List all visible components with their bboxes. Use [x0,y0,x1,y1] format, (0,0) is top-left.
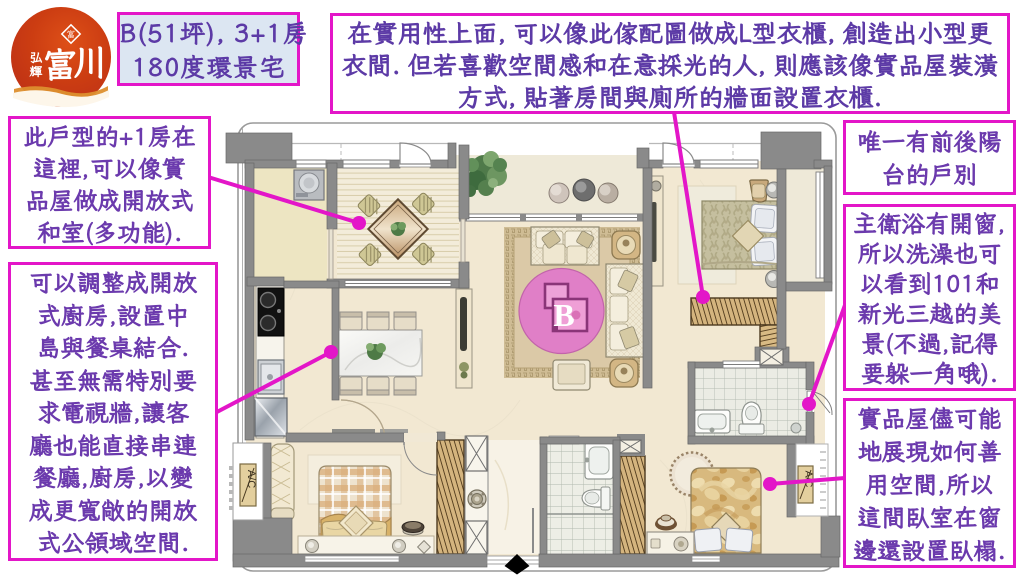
svg-text:A/C: A/C [245,470,257,488]
svg-text:B: B [553,297,574,333]
svg-text:富: 富 [42,41,77,87]
svg-text:輝: 輝 [29,63,42,80]
svg-text:川: 川 [73,39,108,85]
